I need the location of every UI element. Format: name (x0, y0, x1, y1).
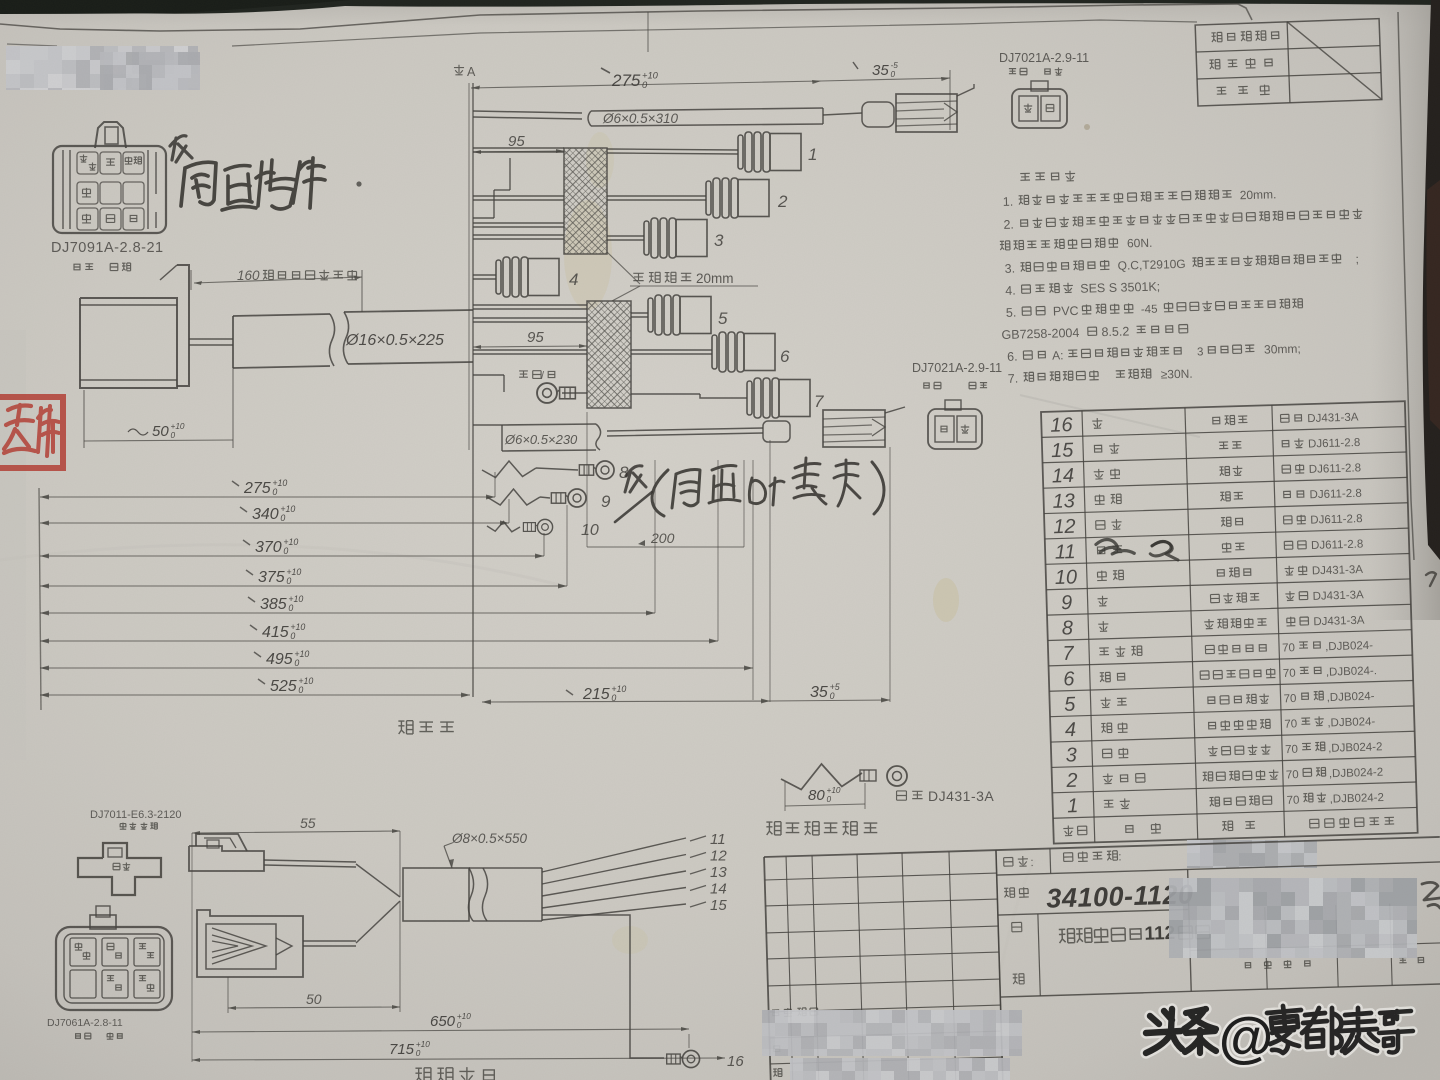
svg-text:1: 1 (808, 145, 817, 164)
svg-text:0: 0 (290, 631, 295, 641)
svg-text:;: ; (1355, 252, 1359, 266)
svg-text:PVC: PVC (1053, 304, 1079, 319)
svg-text:0: 0 (286, 576, 291, 586)
svg-text:9: 9 (601, 492, 611, 511)
svg-text:Q.C,T2910G: Q.C,T2910G (1117, 257, 1185, 273)
svg-text:5: 5 (718, 309, 728, 328)
svg-text:16: 16 (1050, 414, 1074, 437)
svg-text:DJ7021A-2.9-11: DJ7021A-2.9-11 (999, 51, 1089, 65)
svg-text:20mm.: 20mm. (1240, 187, 1277, 202)
svg-text:35: 35 (810, 684, 828, 701)
svg-text:2.: 2. (1003, 218, 1014, 232)
svg-text::: : (1118, 849, 1122, 863)
svg-text:,DJB024-2: ,DJB024-2 (1329, 767, 1384, 781)
svg-text:0: 0 (416, 1049, 421, 1058)
svg-text:,DJB024-.: ,DJB024-. (1326, 665, 1377, 679)
svg-text:,DJB024-2: ,DJB024-2 (1328, 741, 1383, 755)
svg-text:275: 275 (243, 480, 271, 497)
svg-text:50: 50 (152, 423, 169, 440)
svg-text:11: 11 (1054, 541, 1075, 564)
svg-text:9: 9 (1061, 592, 1073, 614)
svg-text:DJ611-2.8: DJ611-2.8 (1310, 513, 1363, 527)
svg-text:,DJB024-: ,DJB024- (1326, 691, 1374, 704)
svg-text:0: 0 (283, 546, 288, 556)
svg-text:715: 715 (389, 1041, 415, 1058)
svg-text:DJ7011-E6.3-2120: DJ7011-E6.3-2120 (90, 809, 182, 821)
svg-text:80: 80 (808, 787, 825, 804)
svg-text:4.: 4. (1005, 284, 1016, 298)
svg-text:10: 10 (581, 522, 599, 539)
svg-text:70: 70 (1283, 668, 1296, 680)
svg-text:0: 0 (642, 80, 648, 90)
svg-text:370: 370 (255, 539, 282, 556)
svg-text:10: 10 (1054, 566, 1077, 589)
svg-text:DJ611-2.8: DJ611-2.8 (1311, 538, 1364, 552)
svg-text:A:: A: (1052, 348, 1064, 362)
svg-text:60N.: 60N. (1127, 236, 1153, 251)
svg-text:0: 0 (280, 513, 285, 523)
svg-text:650: 650 (430, 1013, 456, 1030)
svg-text:DJ431-3A: DJ431-3A (1312, 589, 1364, 603)
svg-text:DJ7091A-2.8-21: DJ7091A-2.8-21 (51, 240, 164, 256)
svg-text:11: 11 (710, 831, 726, 848)
svg-text:275: 275 (611, 71, 641, 90)
svg-text:0: 0 (294, 658, 299, 668)
svg-text:8.5.2: 8.5.2 (1101, 324, 1129, 339)
svg-text:6: 6 (1063, 668, 1076, 690)
svg-text:2: 2 (777, 192, 788, 211)
svg-text:0: 0 (830, 691, 835, 701)
svg-text:70: 70 (1282, 642, 1295, 654)
svg-text:15: 15 (1051, 439, 1075, 462)
svg-text:95: 95 (527, 329, 544, 346)
svg-text:1: 1 (1067, 795, 1079, 817)
svg-text:+10: +10 (642, 70, 659, 80)
svg-text:Ø16×0.5×225: Ø16×0.5×225 (345, 332, 444, 349)
svg-text:0: 0 (272, 487, 277, 497)
svg-text:DJ431-3A: DJ431-3A (1312, 564, 1364, 578)
svg-text:0: 0 (891, 70, 896, 79)
svg-text:15: 15 (710, 897, 727, 914)
svg-text:3: 3 (1065, 744, 1077, 766)
svg-text:13: 13 (710, 864, 727, 881)
svg-text:12: 12 (1053, 516, 1076, 539)
svg-text:375: 375 (258, 569, 285, 586)
svg-text:415: 415 (262, 624, 289, 641)
svg-text:7.: 7. (1008, 372, 1019, 386)
svg-text:DJ431-3A: DJ431-3A (1307, 412, 1359, 426)
svg-text:70: 70 (1286, 795, 1299, 807)
svg-text:3.: 3. (1004, 262, 1015, 276)
svg-text:4: 4 (569, 270, 578, 289)
svg-text:5.: 5. (1006, 306, 1017, 320)
svg-text:12: 12 (710, 848, 727, 865)
svg-text:DJ611-2.8: DJ611-2.8 (1309, 462, 1362, 476)
svg-text:13: 13 (1052, 490, 1075, 513)
svg-text:,DJB024-: ,DJB024- (1327, 716, 1375, 729)
svg-text:Ø6×0.5×230: Ø6×0.5×230 (504, 432, 578, 447)
svg-text:DJ611-2.8: DJ611-2.8 (1308, 437, 1361, 451)
svg-text:7: 7 (814, 392, 824, 411)
svg-text:0: 0 (288, 603, 293, 613)
svg-text:14: 14 (710, 881, 727, 898)
svg-text:70: 70 (1286, 769, 1299, 781)
svg-text:30mm;: 30mm; (1264, 342, 1301, 357)
svg-text:SES S 3501K;: SES S 3501K; (1080, 280, 1160, 296)
svg-text:525: 525 (270, 678, 297, 695)
svg-text:70: 70 (1285, 744, 1298, 756)
svg-text:215: 215 (582, 686, 610, 703)
svg-text:6: 6 (780, 347, 790, 366)
svg-text:1.: 1. (1003, 195, 1014, 209)
svg-text:14: 14 (1051, 465, 1074, 488)
svg-text:Ø6×0.5×310: Ø6×0.5×310 (602, 111, 679, 126)
svg-text:8: 8 (1062, 617, 1074, 639)
svg-text:-45: -45 (1141, 304, 1158, 316)
svg-text:200: 200 (650, 530, 675, 546)
svg-text:DJ7061A-2.8-11: DJ7061A-2.8-11 (47, 1017, 123, 1029)
svg-text:0: 0 (171, 431, 176, 440)
svg-text:55: 55 (300, 815, 316, 831)
svg-text:Ø8×0.5×550: Ø8×0.5×550 (451, 831, 528, 846)
svg-text:495: 495 (266, 651, 293, 668)
svg-text:≥30N.: ≥30N. (1161, 367, 1193, 382)
svg-text:0: 0 (298, 685, 303, 695)
svg-text:,DJB024-2: ,DJB024-2 (1329, 792, 1384, 806)
svg-text:5: 5 (1064, 693, 1077, 715)
svg-text:3: 3 (714, 231, 724, 250)
svg-text:50: 50 (306, 991, 322, 1007)
svg-text:16: 16 (727, 1053, 744, 1070)
svg-text:4: 4 (1065, 719, 1077, 741)
svg-text:70: 70 (1284, 718, 1297, 730)
svg-text::: : (1030, 855, 1034, 869)
svg-text:7: 7 (1062, 643, 1075, 665)
svg-text:20mm: 20mm (696, 271, 734, 286)
svg-text:,DJB024-: ,DJB024- (1325, 640, 1373, 653)
svg-text:0: 0 (611, 693, 616, 703)
svg-text:3: 3 (1197, 346, 1204, 358)
svg-text:DJ7021A-2.9-11: DJ7021A-2.9-11 (912, 361, 1002, 375)
svg-text:70: 70 (1283, 693, 1296, 705)
svg-text:0: 0 (827, 795, 832, 804)
svg-text:340: 340 (252, 506, 279, 523)
svg-text:0: 0 (457, 1021, 462, 1030)
svg-text:DJ611-2.8: DJ611-2.8 (1309, 488, 1362, 502)
svg-text:6.: 6. (1007, 350, 1018, 364)
svg-text:@: @ (1219, 1005, 1274, 1068)
svg-text:A: A (467, 65, 476, 79)
svg-text:2: 2 (1065, 770, 1078, 792)
svg-text:GB7258-2004: GB7258-2004 (1001, 326, 1079, 342)
svg-text:DJ431-3A: DJ431-3A (1313, 615, 1365, 629)
svg-text:385: 385 (260, 596, 287, 613)
svg-text:DJ431-3A: DJ431-3A (928, 788, 994, 804)
svg-text:35: 35 (872, 62, 889, 79)
